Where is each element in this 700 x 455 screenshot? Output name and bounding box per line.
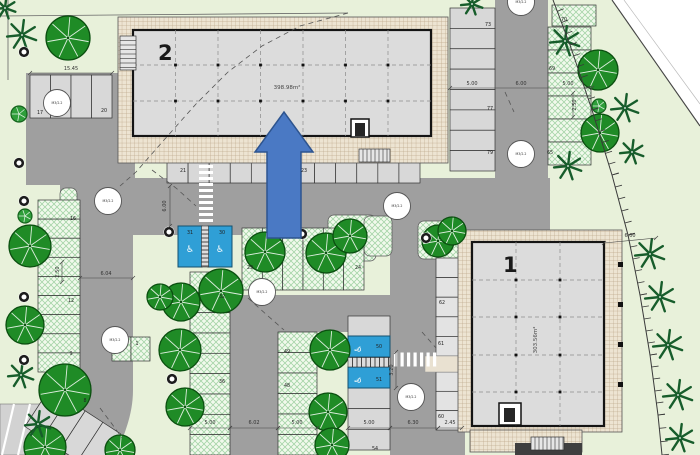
tree-center — [180, 301, 182, 303]
tree-center — [451, 230, 453, 232]
palm-frond — [550, 41, 565, 43]
palm-center — [631, 151, 633, 153]
pedestrian-walkways — [425, 356, 460, 372]
parking-space-number: 20 — [101, 108, 107, 114]
tree-center — [119, 449, 121, 451]
entrance-steps — [359, 149, 390, 162]
parking-space-number: 32 — [219, 294, 225, 300]
bush-icon — [18, 209, 32, 223]
manhole-label: M3/2.2 — [110, 338, 121, 342]
palm-center — [624, 107, 626, 109]
dimension-label: 6.00 — [162, 200, 168, 211]
palm-center — [649, 253, 651, 255]
parking-space-number: 62 — [439, 300, 445, 306]
wheelchair-icon: ♿ — [186, 245, 194, 255]
parking-space-number: 54 — [372, 446, 378, 452]
column-dot — [515, 391, 518, 394]
building-1-number: 1 — [503, 253, 518, 277]
palm-frond — [554, 166, 568, 167]
parking-space — [357, 160, 378, 183]
crosswalk-stripe — [199, 165, 213, 168]
tree-center — [325, 252, 327, 254]
parking-space — [436, 278, 460, 298]
parking-space-number: 17 — [37, 110, 43, 116]
bush-icon — [11, 106, 27, 122]
stair-core-inner — [504, 408, 515, 422]
wheelchair-icon: ♿ — [354, 376, 364, 384]
palm-frond — [7, 35, 22, 37]
parking-space — [190, 313, 230, 333]
walkway — [425, 356, 460, 372]
crosswalk-stripe — [407, 353, 410, 367]
dimension-label: 5.00 — [466, 81, 477, 87]
road — [495, 0, 548, 235]
ramp-walkway — [202, 226, 209, 267]
palm-center — [21, 34, 23, 36]
column-dot — [174, 64, 177, 67]
parking-space — [399, 160, 420, 183]
dimension-label: 6.00 — [624, 233, 635, 239]
manhole-label: M3/2.2 — [516, 0, 527, 4]
column-dot — [559, 316, 562, 319]
parking-space — [348, 316, 390, 337]
site-plan-canvas: ♿♿♿♿ 2 398.98m² 1 303.56m² M3/2.2M3/2.2M… — [0, 0, 700, 455]
parking-space — [378, 160, 399, 183]
parking-space — [548, 96, 591, 119]
parking-space — [131, 337, 150, 361]
building-2-area-label: 398.98m² — [274, 84, 301, 91]
column-dot — [387, 100, 390, 103]
palm-center — [20, 374, 22, 376]
palm-center — [471, 3, 473, 5]
palm-center — [679, 437, 681, 439]
parking-space-number: 49 — [284, 349, 290, 355]
tree-icon — [315, 428, 349, 455]
facade-column — [618, 302, 623, 307]
dimension-label: 2.50 — [572, 99, 578, 110]
parking-space-number: 61 — [438, 341, 444, 347]
tree-center — [331, 444, 333, 446]
column-dot — [387, 64, 390, 67]
parking-space-number: 29 — [247, 265, 253, 271]
crosswalk-stripe — [199, 177, 213, 180]
tree-icon — [438, 217, 466, 245]
facade-column — [618, 342, 623, 347]
parking-space-number: 12 — [68, 298, 74, 304]
palm-frond — [663, 395, 678, 397]
manhole-label: M3/2.2 — [257, 290, 268, 294]
tree-center — [64, 389, 66, 391]
parking-space-number: 1 — [135, 341, 138, 347]
dimension-label: 5.00 — [363, 420, 374, 426]
parking-space — [38, 334, 80, 353]
parking-space-number: 73 — [485, 22, 491, 28]
column-dot — [559, 354, 562, 357]
parking-space-number: 48 — [284, 383, 290, 389]
bush-icon — [592, 99, 606, 113]
parking-space-number: 70 — [561, 17, 567, 23]
road — [60, 178, 550, 235]
parking-space-number: 16 — [70, 216, 76, 222]
crosswalk-stripe — [199, 213, 213, 216]
palm-frond — [645, 297, 660, 299]
palm-frond — [653, 345, 668, 347]
crosswalk-stripe — [199, 171, 213, 174]
tree-center — [179, 349, 181, 351]
crosswalk-stripe — [433, 353, 436, 367]
parking-space — [315, 160, 336, 183]
parking-space — [336, 160, 357, 183]
column-dot — [302, 64, 305, 67]
parking-space-number: 50 — [376, 344, 382, 350]
tree-icon — [147, 284, 173, 310]
tree-icon — [199, 269, 243, 313]
palm-center — [677, 394, 679, 396]
parking-space-number: 21 — [180, 168, 186, 174]
palm-center — [667, 344, 669, 346]
column-dot — [515, 279, 518, 282]
column-dot — [344, 64, 347, 67]
dimension-label: 6.02 — [248, 420, 259, 426]
parking-space — [348, 429, 390, 450]
dimension-label: 2.45 — [444, 420, 455, 426]
column-dot — [302, 100, 305, 103]
column-dot — [174, 100, 177, 103]
green-island — [364, 216, 392, 256]
parking-space-number: 51 — [376, 377, 382, 383]
road — [230, 295, 278, 455]
column-dot — [559, 279, 562, 282]
parking-space — [348, 388, 390, 409]
parking-space — [436, 317, 460, 337]
palm-center — [659, 296, 661, 298]
tree-icon — [578, 50, 618, 90]
tree-center — [327, 411, 329, 413]
entrance-steps — [120, 36, 136, 70]
building-2-number: 2 — [158, 41, 173, 65]
parking-space-number: 9 — [69, 351, 72, 357]
dimension-label: 5.00 — [204, 420, 215, 426]
palm-frond — [635, 254, 650, 256]
column-dot — [515, 354, 518, 357]
parking-space — [71, 75, 92, 118]
palm-center — [37, 423, 39, 425]
parking-space — [436, 258, 460, 278]
parking-space-number: 77 — [487, 106, 493, 112]
crosswalk-stripe — [199, 201, 213, 204]
parking-space — [230, 160, 251, 183]
parking-space-number: 23 — [301, 168, 307, 174]
parking-space — [436, 372, 460, 391]
palm-center — [564, 40, 566, 42]
parking-space-number: 30 — [219, 230, 225, 236]
facade-column — [618, 262, 623, 267]
dimension-label: 6.30 — [407, 420, 418, 426]
tree-center — [67, 37, 69, 39]
parking-space — [38, 276, 80, 295]
dimension-label: 3.20 — [389, 364, 395, 375]
dimension-label: 5.00 — [562, 81, 573, 87]
tree-icon — [39, 364, 91, 416]
parking-space — [450, 28, 495, 48]
site-plan-drawing: ♿♿♿♿ 2 398.98m² 1 303.56m² M3/2.2M3/2.2M… — [0, 0, 700, 455]
manhole-label: M3/2.2 — [52, 101, 63, 105]
building-1-area-label: 303.56m² — [532, 327, 539, 354]
tree-center — [29, 245, 31, 247]
palm-frond — [666, 438, 680, 439]
parking-space-number: 79 — [487, 150, 493, 156]
tree-center — [220, 290, 222, 292]
manhole-label: M3/2.2 — [516, 152, 527, 156]
crosswalk-stripe — [199, 207, 213, 210]
parking-space — [348, 409, 390, 430]
crosswalk-stripe — [199, 189, 213, 192]
parking-space — [278, 435, 317, 455]
column-dot — [217, 64, 220, 67]
column-dot — [259, 64, 262, 67]
facade-column — [618, 382, 623, 387]
tree-icon — [9, 225, 51, 267]
dimension-label: 2.50 — [55, 266, 61, 277]
column-dot — [344, 100, 347, 103]
crosswalk-stripe — [199, 219, 213, 222]
tree-center — [597, 69, 599, 71]
manhole-label: M3/2.2 — [103, 199, 114, 203]
dimension-label: 5.00 — [291, 420, 302, 426]
tree-center — [24, 324, 26, 326]
parking-space-number: 8 — [83, 398, 86, 404]
parking-space-number: 31 — [187, 230, 193, 236]
tree-center — [349, 235, 351, 237]
crosswalk-stripe — [199, 195, 213, 198]
parking-space-number: 24 — [355, 265, 361, 271]
column-dot — [559, 391, 562, 394]
dimension-label: 6.04 — [100, 271, 111, 277]
wheelchair-icon: ♿ — [216, 245, 224, 255]
tree-center — [329, 349, 331, 351]
tree-center — [437, 240, 439, 242]
crosswalk-stripe — [401, 353, 404, 367]
crosswalk-stripe — [394, 353, 397, 367]
tree-icon — [310, 330, 350, 370]
crosswalk-stripe — [199, 183, 213, 186]
column-dot — [515, 316, 518, 319]
tree-center — [44, 446, 46, 448]
palm-frond — [611, 108, 625, 109]
tree-center — [184, 406, 186, 408]
tree-icon — [6, 306, 44, 344]
parking-space — [450, 49, 495, 69]
tree-icon — [333, 219, 367, 253]
tree-icon — [309, 393, 347, 431]
parking-space — [190, 435, 230, 455]
column-dot — [217, 100, 220, 103]
dimension-label: 15.45 — [64, 66, 78, 72]
wheelchair-icon: ♿ — [354, 345, 364, 353]
tree-icon — [46, 16, 90, 60]
stair-core-inner — [355, 123, 365, 136]
column-dot — [259, 100, 262, 103]
parking-space — [450, 130, 495, 150]
tree-icon — [166, 388, 204, 426]
crosswalk-stripe — [414, 353, 417, 367]
parking-space-number: 69 — [549, 66, 555, 72]
road — [438, 430, 465, 455]
tree-center — [159, 296, 161, 298]
parking-space-number: 65 — [547, 150, 553, 156]
parking-space — [450, 110, 495, 130]
parking-space-number: 60 — [438, 414, 444, 420]
palm-center — [567, 165, 569, 167]
parking-space — [436, 391, 460, 410]
parking-space-number: 36 — [219, 379, 225, 385]
palm-center — [4, 7, 6, 9]
dimension-label: 6.00 — [515, 81, 526, 87]
tree-center — [264, 251, 266, 253]
tree-icon — [159, 329, 201, 371]
crosswalk-stripe — [427, 353, 430, 367]
manhole-label: M3/2.2 — [406, 395, 417, 399]
crosswalk-stripe — [420, 353, 423, 367]
manhole-label: M3/2.2 — [392, 204, 403, 208]
